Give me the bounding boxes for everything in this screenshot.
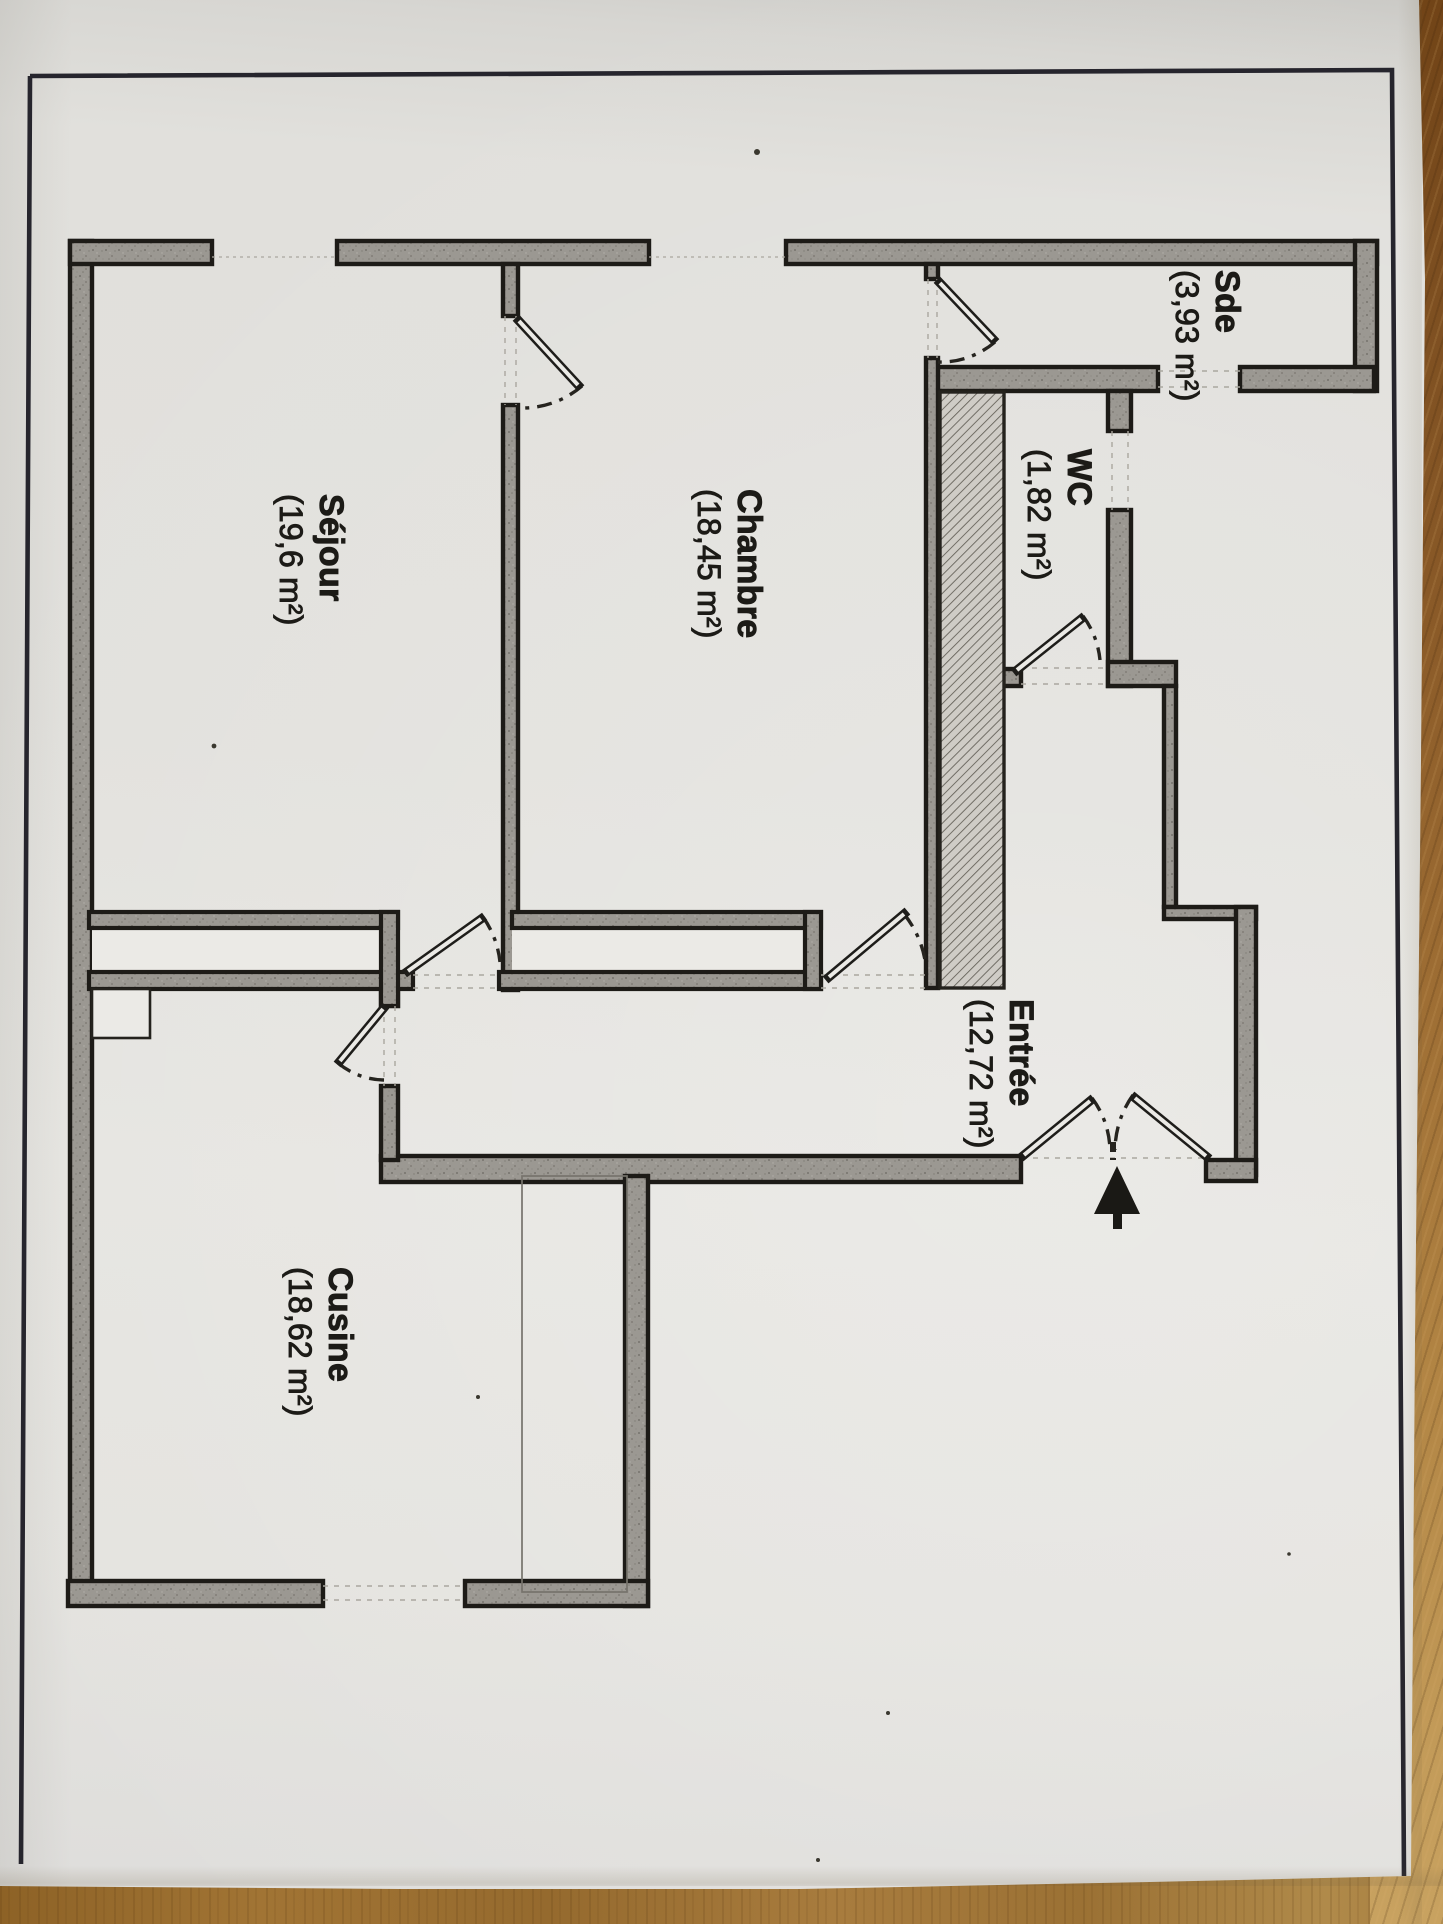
svg-text:Cusine(18,62 m²): Cusine(18,62 m²) xyxy=(282,1267,359,1417)
svg-text:Chambre(18,45 m²): Chambre(18,45 m²) xyxy=(691,489,768,639)
svg-text:Entrée(12,72 m²): Entrée(12,72 m²) xyxy=(963,999,1040,1149)
svg-text:WC(1,82 m²): WC(1,82 m²) xyxy=(1021,449,1098,581)
svg-text:Séjour(19,6 m²): Séjour(19,6 m²) xyxy=(273,494,350,626)
svg-text:Sde(3,93 m²): Sde(3,93 m²) xyxy=(1169,270,1246,402)
